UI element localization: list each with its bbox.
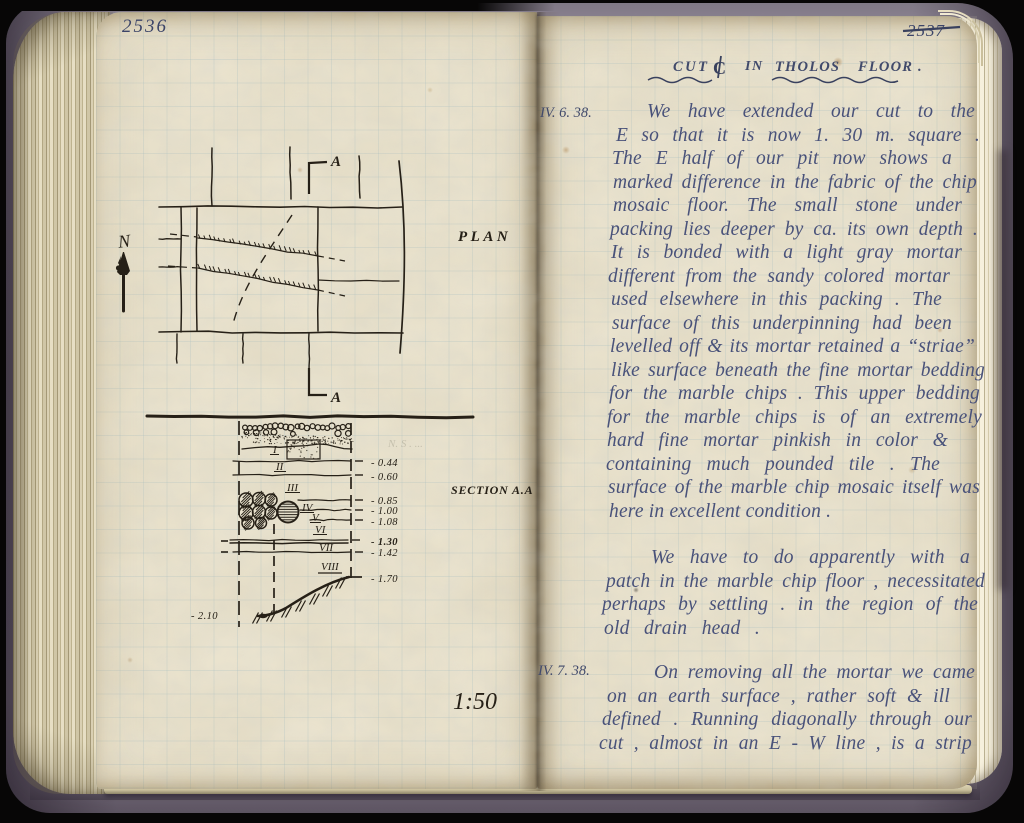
svg-text:- 1.08: - 1.08	[371, 517, 398, 528]
svg-text:N. S . ...: N. S . ...	[387, 438, 423, 450]
svg-text:- 0.60: - 0.60	[371, 472, 398, 483]
svg-text:- 1.42: - 1.42	[371, 548, 398, 559]
svg-text:- 1.00: - 1.00	[371, 506, 398, 517]
svg-text:- 1.70: - 1.70	[371, 574, 398, 585]
svg-text:- 1.30: - 1.30	[371, 537, 398, 548]
svg-text:A: A	[330, 390, 341, 406]
svg-text:VIII: VIII	[321, 561, 340, 573]
svg-text:SECTION A.A: SECTION A.A	[451, 483, 533, 497]
svg-text:1:50: 1:50	[453, 689, 497, 715]
svg-text:PLAN: PLAN	[458, 229, 511, 245]
svg-text:N: N	[116, 230, 132, 251]
svg-text:- 2.10: - 2.10	[191, 611, 218, 622]
svg-text:A: A	[330, 154, 341, 170]
svg-text:- 0.44: - 0.44	[371, 458, 398, 469]
